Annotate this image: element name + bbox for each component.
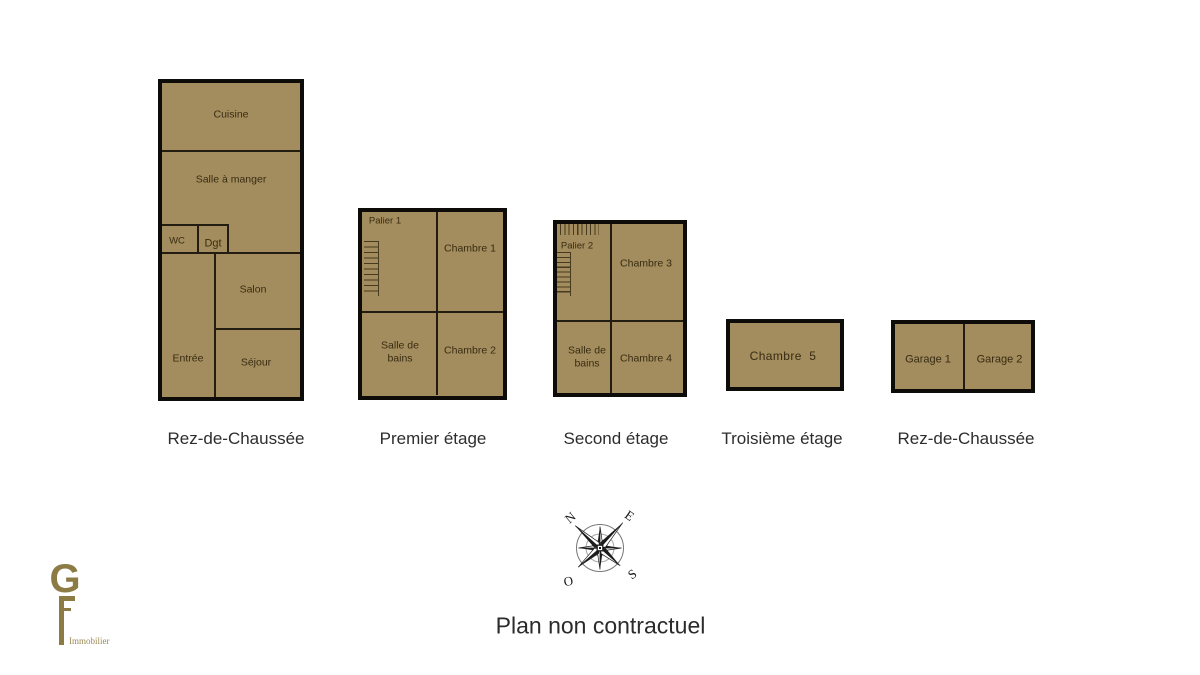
- svg-text:S: S: [625, 566, 640, 582]
- svg-text:N: N: [562, 508, 579, 526]
- svg-text:E: E: [622, 507, 637, 524]
- svg-text:O: O: [562, 573, 574, 589]
